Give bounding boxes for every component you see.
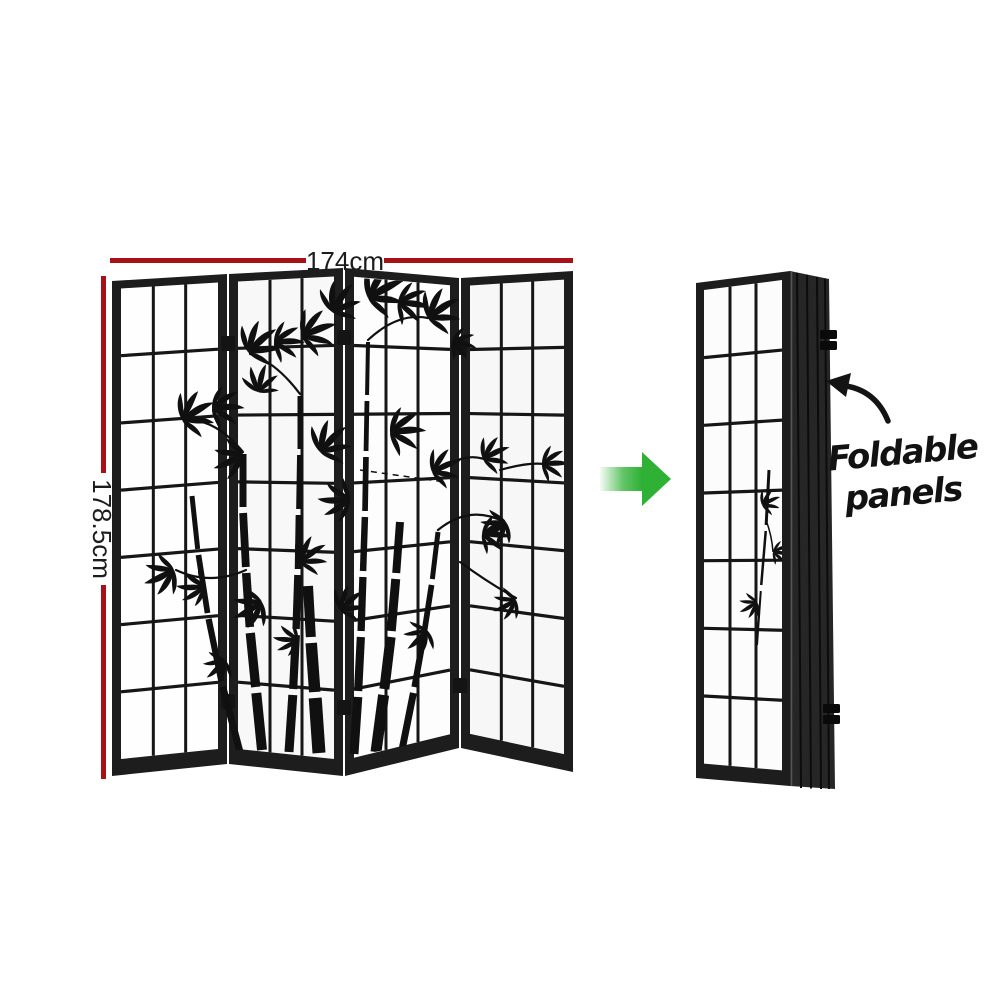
product-image-canvas: 174cm 178.5cm Foldable panels xyxy=(0,0,1000,1000)
product-illustration: 174cm 178.5cm Foldable panels xyxy=(0,0,1000,1000)
panel-4 xyxy=(461,271,573,772)
green-arrow-head xyxy=(642,452,671,506)
folded-front-panel xyxy=(696,271,790,786)
curved-arrow-icon xyxy=(826,373,888,421)
height-dimension-line-top xyxy=(101,276,106,473)
panel-1 xyxy=(112,274,227,776)
width-dimension-line-left xyxy=(110,258,306,263)
room-divider-front-view xyxy=(112,260,573,776)
room-divider-folded-view xyxy=(696,271,840,789)
folded-panel xyxy=(696,271,790,786)
height-dimension-line-bottom xyxy=(101,585,106,779)
curved-arrow-shaft xyxy=(846,386,888,421)
green-arrow-tail xyxy=(600,467,642,491)
foldable-note: Foldable panels xyxy=(826,427,983,521)
fold-direction-arrow-icon xyxy=(600,452,671,506)
width-dimension-line-right xyxy=(384,258,573,263)
